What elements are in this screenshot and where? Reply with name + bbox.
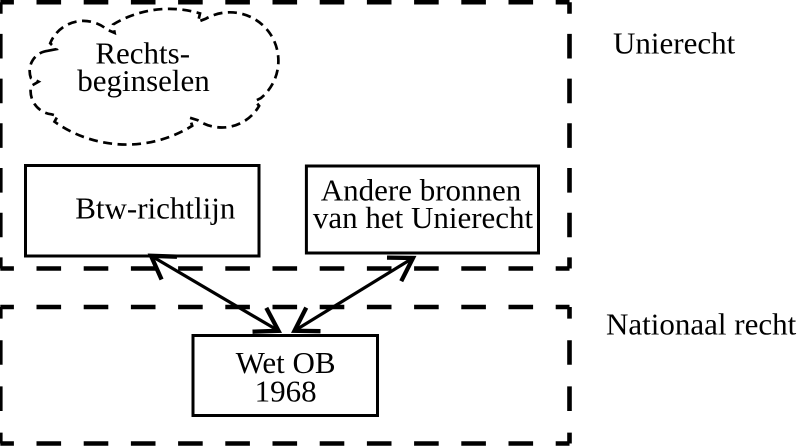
svg-text:beginselen: beginselen — [77, 63, 210, 98]
svg-text:Nationaal recht: Nationaal recht — [606, 306, 797, 341]
svg-text:van het Unierecht: van het Unierecht — [313, 200, 534, 235]
svg-text:Unierecht: Unierecht — [613, 26, 736, 61]
svg-text:1968: 1968 — [255, 374, 317, 409]
svg-text:Btw-richtlijn: Btw-richtlijn — [75, 191, 236, 226]
